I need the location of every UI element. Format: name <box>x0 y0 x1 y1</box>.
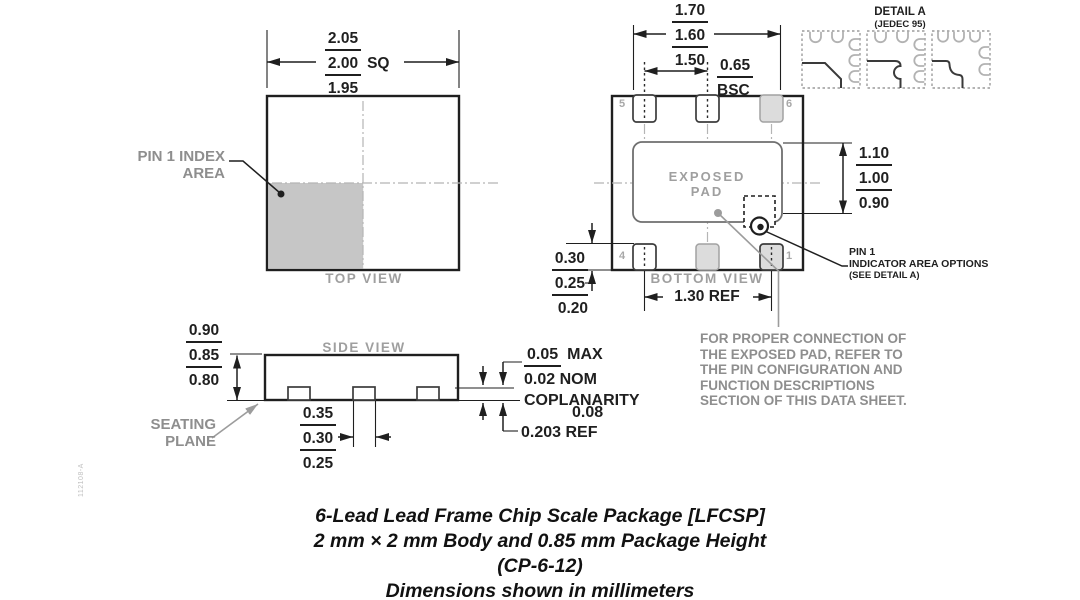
exposed-pad-label: EXPOSED PAD <box>647 169 767 199</box>
detail-a-subtitle: (JEDEC 95) <box>855 20 945 30</box>
coplanarity-value: 0.08 <box>572 405 603 421</box>
pin1-index-area-label: PIN 1 INDEX AREA <box>115 149 225 182</box>
caption-package-name: 6-Lead Lead Frame Chip Scale Package [LF… <box>0 504 1080 529</box>
pin1-indicator-options-note: PIN 1 INDICATOR AREA OPTIONS (SEE DETAIL… <box>849 246 988 282</box>
dim-lead-width: 0.35 0.30 0.25 <box>294 406 342 477</box>
package-outline-drawing: 2.05 2.00SQ 1.95 PIN 1 INDEX AREA TOP VI… <box>0 0 1080 600</box>
drawing-revision-code: 112108-A <box>78 437 85 497</box>
dim-lead-span-width: 1.70 1.60 1.50 <box>664 3 716 74</box>
pin-number-6: 6 <box>786 99 792 110</box>
seating-plane-arrow <box>212 404 258 438</box>
dim-lead-thickness-ref: 0.203 REF <box>521 425 597 441</box>
detail-a-drawing <box>802 31 990 88</box>
bottom-view-label: BOTTOM VIEW <box>640 272 774 286</box>
pad-top-right <box>760 95 783 122</box>
figure-caption: 6-Lead Lead Frame Chip Scale Package [LF… <box>0 504 1080 600</box>
top-view-label: TOP VIEW <box>299 272 429 286</box>
dim-exposed-pad-size: 1.10 1.00 0.90 <box>850 146 898 217</box>
dim-body-size: 2.05 2.00SQ 1.95 <box>300 31 386 102</box>
caption-package-code: (CP-6-12) <box>0 554 1080 579</box>
side-view-drawing <box>212 354 522 447</box>
dim-lead-pitch-span: 1.30 REF <box>660 289 754 305</box>
seating-plane-label: SEATING PLANE <box>116 417 216 450</box>
side-lead-2 <box>353 387 375 400</box>
pad-bottom-middle <box>696 244 719 270</box>
dim-package-height: 0.90 0.85 0.80 <box>180 323 228 394</box>
pin-number-5: 5 <box>619 99 625 110</box>
caption-body-size: 2 mm × 2 mm Body and 0.85 mm Package Hei… <box>0 529 1080 554</box>
pin-number-4: 4 <box>619 251 625 262</box>
detail-a-title: DETAIL A <box>855 7 945 19</box>
dim-lead-length: 0.30 0.25 0.20 <box>542 251 588 322</box>
dim-pitch: 0.65 BSC <box>717 58 753 104</box>
caption-units: Dimensions shown in millimeters <box>0 579 1080 600</box>
side-lead-1 <box>288 387 310 400</box>
pin-number-1: 1 <box>786 251 792 262</box>
exposed-pad-connection-note: FOR PROPER CONNECTION OF THE EXPOSED PAD… <box>700 331 907 409</box>
side-lead-3 <box>417 387 439 400</box>
side-view-label: SIDE VIEW <box>299 341 429 355</box>
